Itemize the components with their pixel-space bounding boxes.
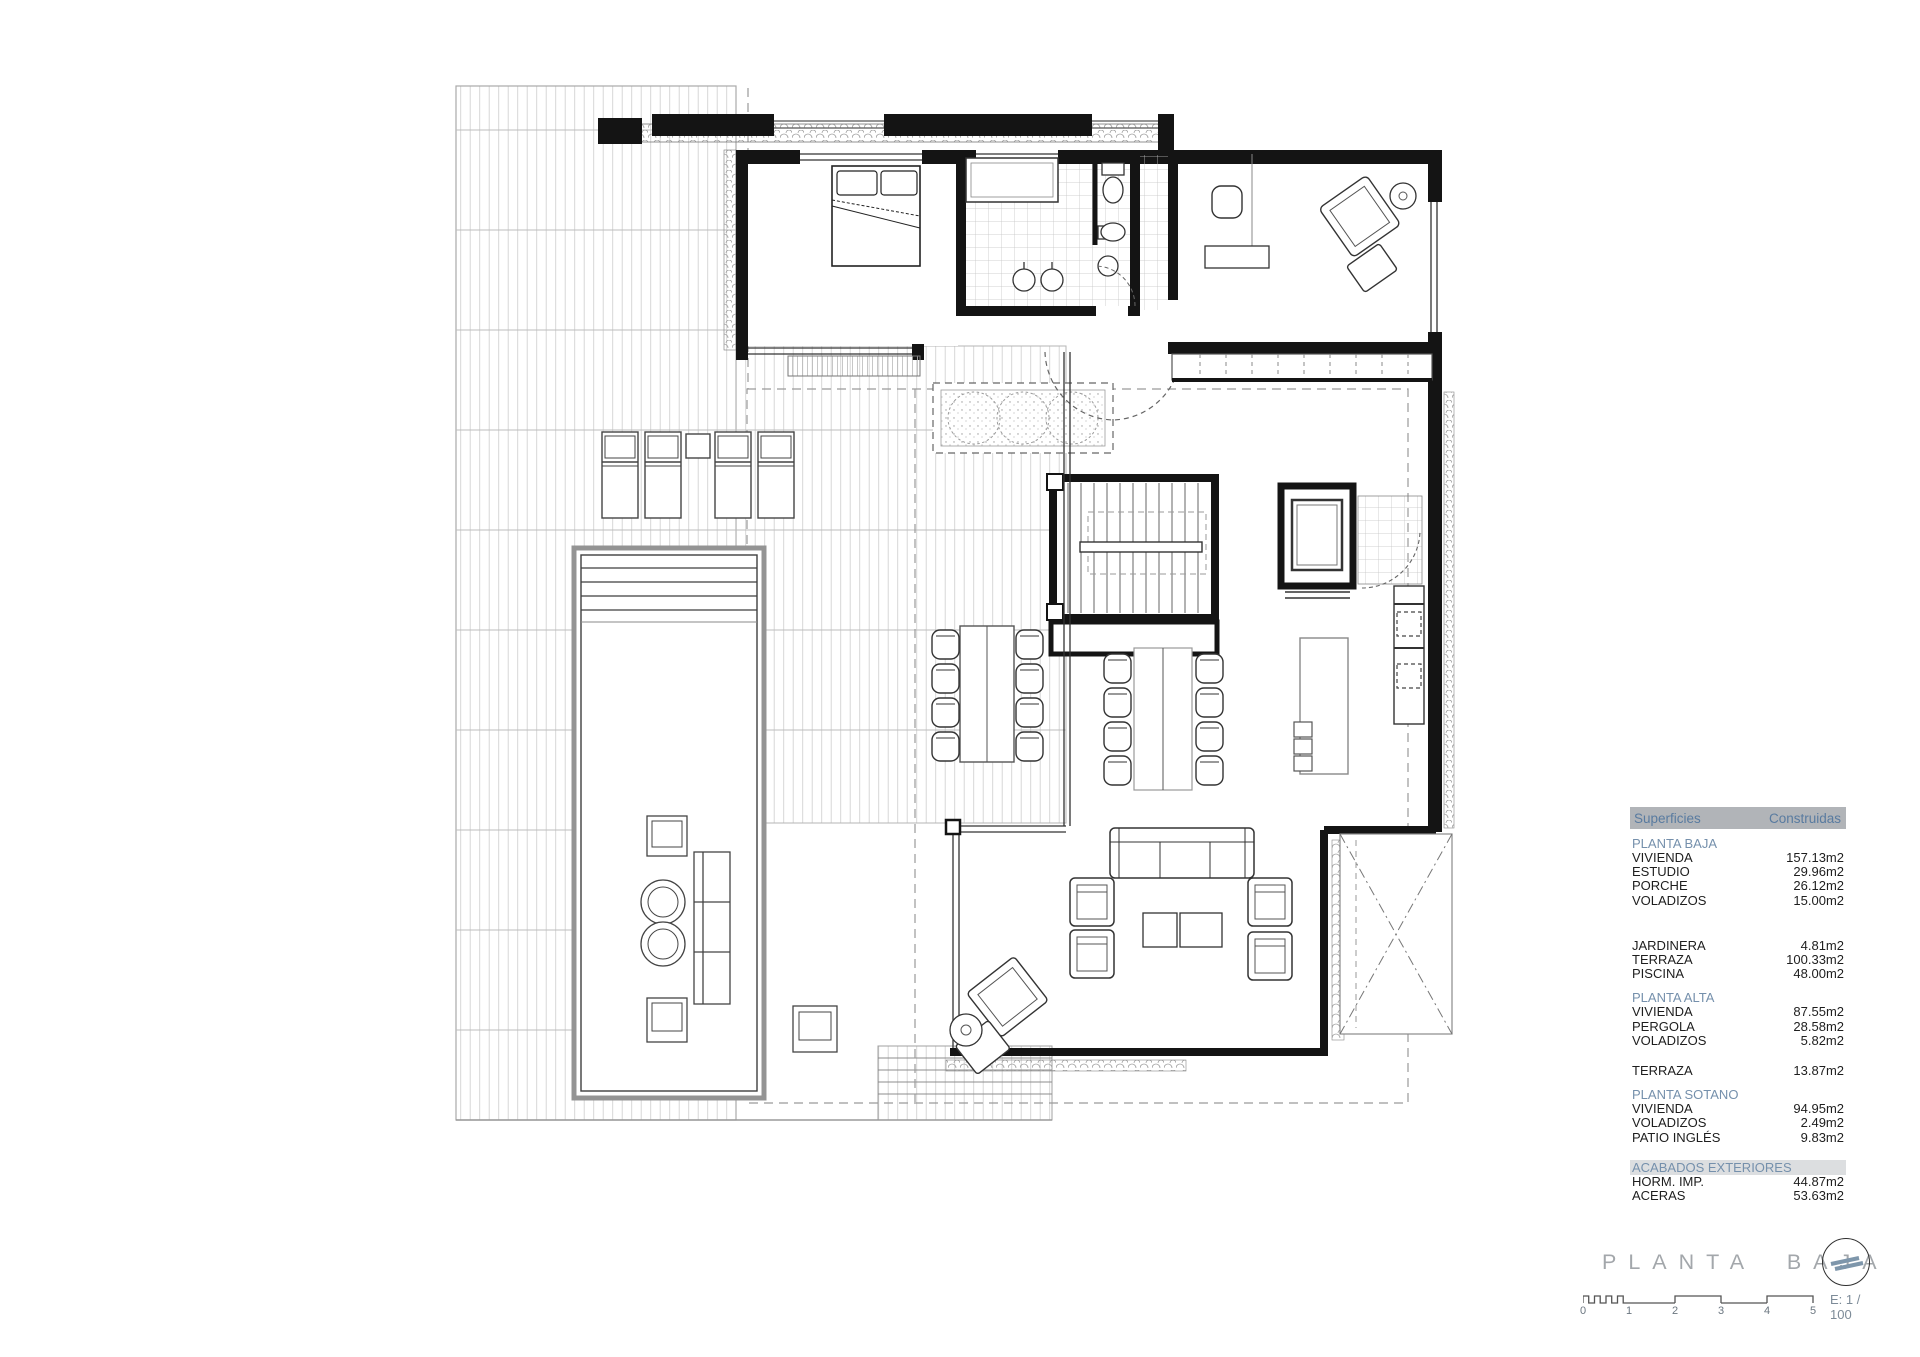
surface-label: VOLADIZOS [1632,1116,1706,1130]
north-arrow-icon [1822,1238,1870,1286]
surfaces-col-label: Superficies [1634,811,1701,826]
indoor-dining [1104,648,1223,790]
surface-value: 26.12m2 [1793,879,1844,893]
surface-value: 4.81m2 [1801,939,1844,953]
surface-value: 9.83m2 [1801,1131,1844,1145]
surfaces-section-header: PLANTA SOTANO [1630,1087,1846,1102]
bathroom [956,150,1140,316]
surfaces-section-header: PLANTA ALTA [1630,990,1846,1005]
surface-value: 44.87m2 [1793,1175,1844,1189]
surfaces-sections: PLANTA BAJAVIVIENDA157.13m2ESTUDIO29.96m… [1630,836,1846,1203]
surfaces-table: Superficies Construidas PLANTA BAJAVIVIE… [1630,807,1846,1203]
surface-row: JARDINERA4.81m2 [1630,939,1846,953]
bedroom [736,164,958,376]
surface-row: PORCHE26.12m2 [1630,879,1846,893]
desk-chair [1212,186,1242,218]
round-table [950,1014,982,1046]
surface-label: PORCHE [1632,879,1688,893]
surface-value: 48.00m2 [1793,967,1844,981]
surface-value: 53.63m2 [1793,1189,1844,1203]
bed [832,166,920,266]
surfaces-section: TERRAZA13.87m2 [1630,1064,1846,1078]
surface-value: 29.96m2 [1793,865,1844,879]
toilet [1102,163,1124,203]
surface-row: ACERAS53.63m2 [1630,1189,1846,1203]
vanity-closet [966,158,1058,202]
scale-bar-graphic [1583,1290,1823,1306]
surface-label: PATIO INGLÉS [1632,1131,1720,1145]
surface-value: 15.00m2 [1793,894,1844,908]
surface-row: VIVIENDA87.55m2 [1630,1005,1846,1019]
surface-label: VIVIENDA [1632,1005,1693,1019]
surfaces-section: JARDINERA4.81m2TERRAZA100.33m2PISCINA48.… [1630,939,1846,982]
surfaces-table-header: Superficies Construidas [1630,807,1846,829]
surface-row: PATIO INGLÉS9.83m2 [1630,1131,1846,1145]
surface-row: VIVIENDA157.13m2 [1630,851,1846,865]
surface-label: VOLADIZOS [1632,894,1706,908]
scale-tick: 0 [1580,1305,1586,1317]
surfaces-section: PLANTA BAJAVIVIENDA157.13m2ESTUDIO29.96m… [1630,836,1846,908]
scale-tick: 1 [1626,1305,1632,1317]
lobby [1358,496,1422,588]
surface-label: HORM. IMP. [1632,1175,1704,1189]
surface-value: 2.49m2 [1801,1116,1844,1130]
surfaces-section: PLANTA ALTAVIVIENDA87.55m2PERGOLA28.58m2… [1630,990,1846,1048]
surface-row: ESTUDIO29.96m2 [1630,865,1846,879]
scale-tick: 4 [1764,1305,1770,1317]
scale-ratio-label: E: 1 / 100 [1830,1292,1883,1322]
study [1168,154,1436,380]
surfaces-section-header: ACABADOS EXTERIORES [1630,1160,1846,1175]
scale-tick: 3 [1718,1305,1724,1317]
surface-value: 5.82m2 [1801,1034,1844,1048]
desk [1205,246,1269,268]
surface-value: 28.58m2 [1793,1020,1844,1034]
surface-label: VIVIENDA [1632,1102,1693,1116]
scale-bar: 0 1 2 3 4 5 E: 1 / 100 [1583,1290,1883,1330]
surface-value: 13.87m2 [1793,1064,1844,1078]
surface-row: TERRAZA13.87m2 [1630,1064,1846,1078]
surface-value: 94.95m2 [1793,1102,1844,1116]
surface-value: 87.55m2 [1793,1005,1844,1019]
surface-label: VOLADIZOS [1632,1034,1706,1048]
living-room [950,828,1292,1074]
side-table [1390,183,1416,209]
surface-label: VIVIENDA [1632,851,1693,865]
kitchen [1294,586,1424,774]
surface-row: VIVIENDA94.95m2 [1630,1102,1846,1116]
coffee-tables [1143,913,1222,947]
construidas-col-label: Construidas [1769,811,1841,826]
surfaces-section: PLANTA SOTANOVIVIENDA94.95m2VOLADIZOS2.4… [1630,1087,1846,1145]
porch-pavers [1172,354,1432,380]
surface-label: JARDINERA [1632,939,1706,953]
surfaces-section-header: PLANTA BAJA [1630,836,1846,851]
scale-tick: 2 [1672,1305,1678,1317]
scale-tick: 5 [1810,1305,1816,1317]
planter [933,383,1113,453]
surface-row: VOLADIZOS2.49m2 [1630,1116,1846,1130]
surface-row: VOLADIZOS15.00m2 [1630,894,1846,908]
surface-label: PISCINA [1632,967,1684,981]
surface-row: HORM. IMP.44.87m2 [1630,1175,1846,1189]
surface-value: 100.33m2 [1786,953,1844,967]
surface-row: VOLADIZOS5.82m2 [1630,1034,1846,1048]
sofa [1110,828,1254,878]
surface-label: ACERAS [1632,1189,1685,1203]
void-cross-box [1340,834,1452,1034]
surface-row: PERGOLA28.58m2 [1630,1020,1846,1034]
surface-value: 157.13m2 [1786,851,1844,865]
staircase [1047,474,1217,654]
surface-label: ESTUDIO [1632,865,1690,879]
surface-row: PISCINA48.00m2 [1630,967,1846,981]
surface-row: TERRAZA100.33m2 [1630,953,1846,967]
surface-label: TERRAZA [1632,1064,1693,1078]
bidet [1098,223,1125,241]
surfaces-section: ACABADOS EXTERIORESHORM. IMP.44.87m2ACER… [1630,1160,1846,1203]
elevator [1281,486,1353,598]
surface-label: TERRAZA [1632,953,1693,967]
surface-label: PERGOLA [1632,1020,1695,1034]
